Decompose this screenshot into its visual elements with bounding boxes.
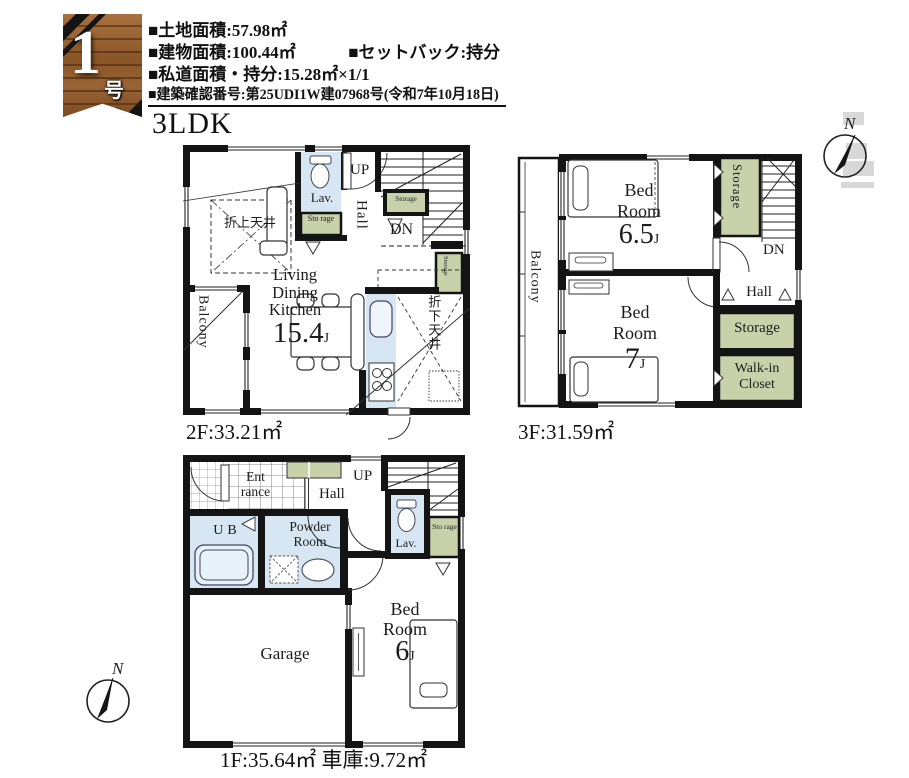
floor-1f-area-label: 1F:35.64㎡ 車庫:9.72㎡ <box>220 744 427 774</box>
floorplan-flyer: { "badge": {"number": "1", "suffix": "号棟… <box>0 0 909 778</box>
storage-label: Sto rage <box>431 522 458 531</box>
stairs-down-label: DN <box>763 242 785 259</box>
raised-ceiling-label: 折上天井 <box>213 216 287 230</box>
room-size: 15.4 <box>273 317 324 349</box>
bedroom1-size-label: 6.5J <box>579 220 699 251</box>
room-size-unit: J <box>640 357 645 372</box>
balcony-label: Balcony <box>527 250 542 340</box>
compass-icon <box>80 653 140 737</box>
confirmation-number-text: ■建築確認番号:第25UDI1W建07968号(令和7年10月18日) <box>148 83 499 104</box>
room-name-line: Bed <box>579 180 699 201</box>
ldk-label: Living Dining Kitchen <box>245 266 345 319</box>
layout-title: 3LDK <box>152 107 233 141</box>
compass-north-label: N <box>112 659 123 679</box>
storage-label: Storage <box>729 164 743 232</box>
compass-north-label: N <box>844 114 855 134</box>
stairs-down-label: DN <box>390 221 413 239</box>
bedroom2-size-label: 7J <box>575 342 695 375</box>
floor-1f-plan: Ent rance Hall UP UB Powder Room Lav. St… <box>183 453 468 778</box>
floor-3f-plan: Balcony Bed Room 6.5J Storage DN Hall St… <box>517 150 805 450</box>
powder-room-label: Powder Room <box>276 519 344 549</box>
room-name-line: Powder <box>276 519 344 534</box>
stairs-up-label: UP <box>353 468 372 485</box>
dropped-ceiling-label: 折下天井 <box>426 295 440 385</box>
ldk-line: Kitchen <box>245 301 345 319</box>
room-size-unit: J <box>654 232 659 247</box>
room-size-unit: J <box>324 331 329 346</box>
storage-label: Storage <box>386 196 426 204</box>
private-road-text: ■私道面積・持分:15.28㎡×1/1 <box>148 60 370 85</box>
room-name-line: Ent <box>228 469 283 484</box>
storage-label: Storage <box>442 256 449 290</box>
garage-label: Garage <box>228 645 342 664</box>
stairs-up-label: UP <box>350 162 369 179</box>
ldk-size-label: 15.4J <box>249 318 353 350</box>
floor-3f-area-label: 3F:31.59㎡ <box>518 416 614 446</box>
ldk-line: Dining <box>245 284 345 302</box>
lavatory-label: Lav. <box>389 537 423 550</box>
floor-2f-area-label: 2F:33.21㎡ <box>186 416 282 446</box>
room-name-line: Bed <box>361 599 449 619</box>
ldk-line: Living <box>245 266 345 284</box>
room-size-unit: J <box>409 649 414 664</box>
room-name-line: Room <box>276 534 344 549</box>
storage-label: Sto rage <box>302 214 340 224</box>
bedroom2-label: Bed Room <box>575 302 695 344</box>
compass-top-right: N <box>815 108 875 192</box>
hall-label: Hall <box>319 486 345 503</box>
bedroom-size-label: 6J <box>361 637 449 668</box>
hall-label: Hall <box>735 284 783 301</box>
balcony-label: Balcony <box>195 295 210 395</box>
room-name-line: rance <box>228 484 283 499</box>
room-size: 6 <box>395 636 409 667</box>
hall-label: Hall <box>353 200 370 252</box>
bedroom1-label: Bed Room <box>579 180 699 222</box>
room-size: 7 <box>625 342 640 375</box>
room-name-line: Closet <box>719 377 795 393</box>
storage-label: Storage <box>719 320 795 337</box>
walk-in-closet-label: Walk-in Closet <box>719 361 795 393</box>
entrance-label: Ent rance <box>228 469 283 499</box>
room-name-line: Walk-in <box>719 361 795 377</box>
lavatory-label: Lav. <box>300 191 344 205</box>
unit-bath-label: UB <box>199 523 255 538</box>
room-name-line: Bed <box>575 302 695 323</box>
setback-text: ■セットバック:持分 <box>348 43 500 62</box>
badge-number: 1 <box>70 22 101 84</box>
bedroom-label: Bed Room <box>361 599 449 639</box>
room-size: 6.5 <box>619 219 654 250</box>
badge-suffix: 号棟 <box>104 74 142 117</box>
room-name-line: Room <box>575 323 695 344</box>
compass-bottom-left: N <box>80 653 140 737</box>
unit-badge: 1 号棟 <box>63 14 142 117</box>
floor-2f-plan: Lav. Sto rage UP Hall Storage DN Storage… <box>183 145 470 450</box>
